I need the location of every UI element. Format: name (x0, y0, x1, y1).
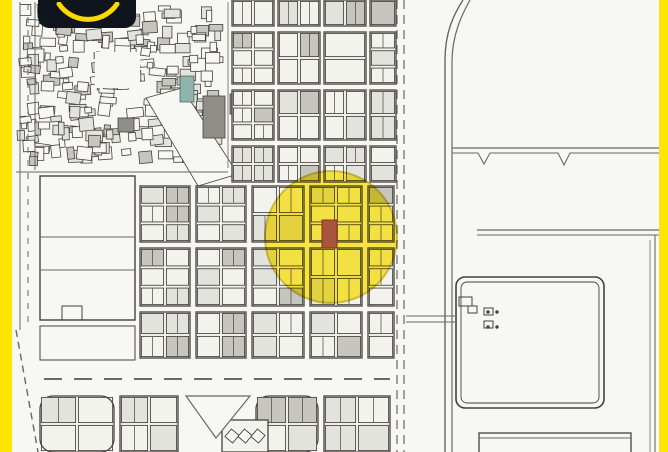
smile-icon (53, 2, 123, 26)
sakan-logo: SAKAN (38, 0, 136, 28)
cadastral-map (0, 0, 668, 452)
location-marker (322, 220, 337, 248)
left-yellow-border (0, 0, 12, 452)
smile-arc (59, 4, 117, 19)
right-yellow-border (659, 0, 668, 452)
listing-map-image: SAKAN (0, 0, 668, 452)
